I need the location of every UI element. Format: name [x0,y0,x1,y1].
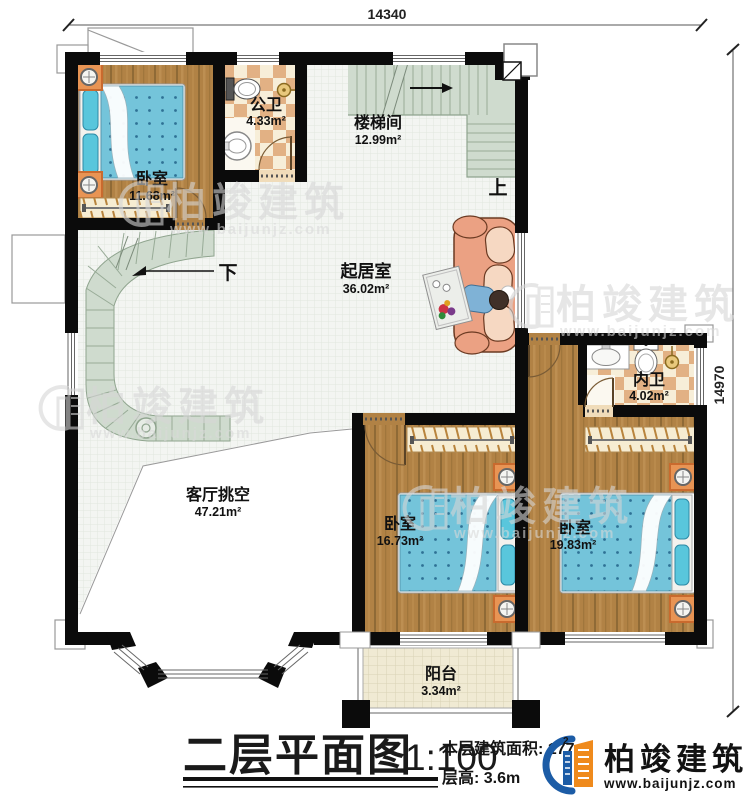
floor-area-superscript: 2 [563,736,569,747]
room-area-ensuite: 4.02m² [629,389,669,403]
plan-title: 二层平面图 [183,731,413,780]
room-area-living: 36.02m² [343,282,390,296]
room-area-balcony: 3.34m² [421,684,461,698]
pillow [501,545,515,585]
bed-topleft [79,84,185,180]
window [237,52,279,65]
window [100,52,186,65]
floor-height-text: 层高: 3.6m [442,768,520,787]
room-label-ensuite: 内卫 [633,370,665,389]
wardrobe-right [585,427,695,452]
watermark-name: 柏竣建筑 [450,485,634,529]
nightstand-icon [76,172,102,198]
pillar [342,700,370,728]
pillow [675,499,689,539]
watermark-url: www.baijunjz.com [559,323,721,340]
flue-box [503,44,537,80]
title-underline-thin [183,786,438,788]
room-area-public-bath: 4.33m² [246,114,286,128]
pillow [675,545,689,585]
watermark-url: www.baijunjz.com [89,425,251,442]
title-underline [183,777,438,781]
window [694,348,707,405]
floorplan-page: 14340 14970 卧室 11.68m² 公卫 4.33m² 楼梯间 12.… [0,0,750,803]
brand-website: www.baijunjz.com [603,776,737,791]
dimension-right: 14970 [711,44,739,717]
floorplan-drawing: 14340 14970 卧室 11.68m² 公卫 4.33m² 楼梯间 12.… [0,0,750,803]
window [515,233,528,328]
watermark-name: 柏竣建筑 [86,385,270,429]
nightstand-icon [76,64,102,90]
stair-down-label: 下 [218,263,237,284]
pillar [512,700,540,728]
pillow [83,134,98,174]
window [393,52,465,65]
room-area-bedroom-mid: 16.73m² [377,534,424,548]
room-area-stairwell: 12.99m² [355,133,402,147]
stair-up-label: 上 [488,177,507,199]
room-area-void: 47.21m² [195,505,242,519]
dim-right-value: 14970 [711,365,727,404]
watermark-name: 柏竣建筑 [166,181,350,225]
room-label-void: 客厅挑空 [186,485,250,504]
watermark-name: 柏竣建筑 [556,283,740,327]
dim-top-value: 14340 [368,6,407,22]
porch-roof-outline [12,235,65,303]
balcony-sliding-door [400,632,487,645]
pillow [83,90,98,130]
pedestal-sink-icon [223,132,251,160]
wardrobe-mid [407,427,517,452]
room-label-public-bath: 公卫 [250,96,282,114]
room-label-balcony: 阳台 [425,664,457,683]
watermark-url: www.baijunjz.com [453,525,615,542]
window [565,632,665,645]
room-label-stairwell: 楼梯间 [354,113,402,132]
dimension-top: 14340 [63,6,707,31]
nightstand-icon [670,596,696,622]
counter-sink-icon [585,345,629,369]
nightstand-icon [670,464,696,490]
brand-name: 柏竣建筑 [604,742,748,777]
title-block: 二层平面图 1:100 本层建筑面积: 177. 层高: 3.6m 2 柏竣建筑… [183,731,748,791]
watermark-url: www.baijunjz.com [169,221,331,238]
watermark: 柏竣建筑 www.baijunjz.com [511,283,740,340]
room-label-living: 起居室 [340,261,392,281]
toilet-icon [634,341,658,375]
